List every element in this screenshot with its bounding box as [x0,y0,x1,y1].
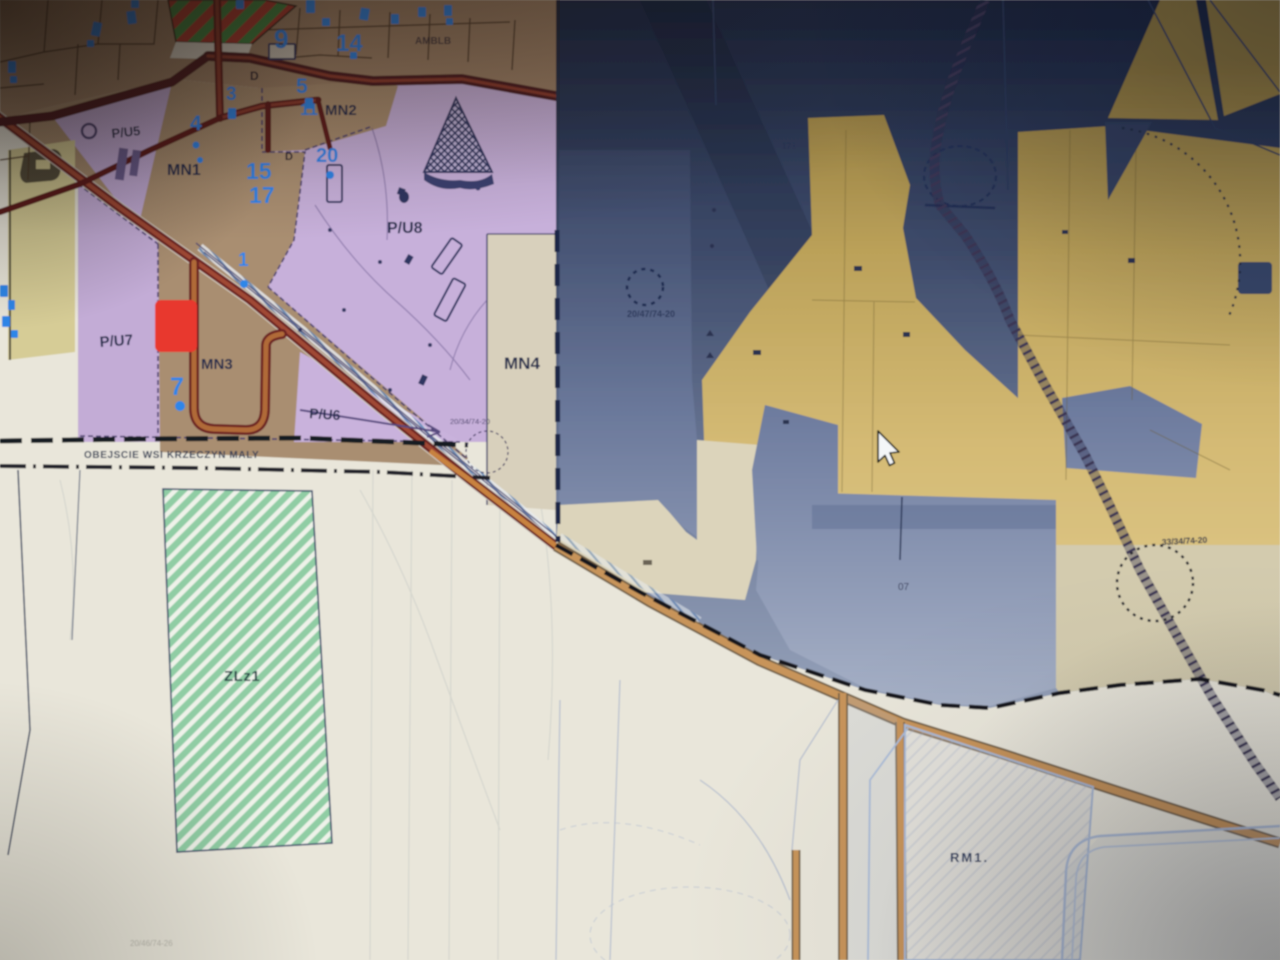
svg-text:P/U6: P/U6 [309,405,341,423]
svg-text:MN4: MN4 [504,354,540,373]
svg-text:20/47/74-20: 20/47/74-20 [627,309,675,319]
svg-text:OBEJSCIE WSI KRZECZYN MALY: OBEJSCIE WSI KRZECZYN MALY [84,450,259,461]
svg-text:P/U7: P/U7 [99,332,133,351]
svg-text:MN3: MN3 [201,356,233,373]
svg-text:07: 07 [898,582,910,593]
svg-text:7: 7 [170,373,184,401]
svg-text:20/34/74-20: 20/34/74-20 [450,417,490,426]
svg-text:ZLz1: ZLz1 [224,668,260,685]
